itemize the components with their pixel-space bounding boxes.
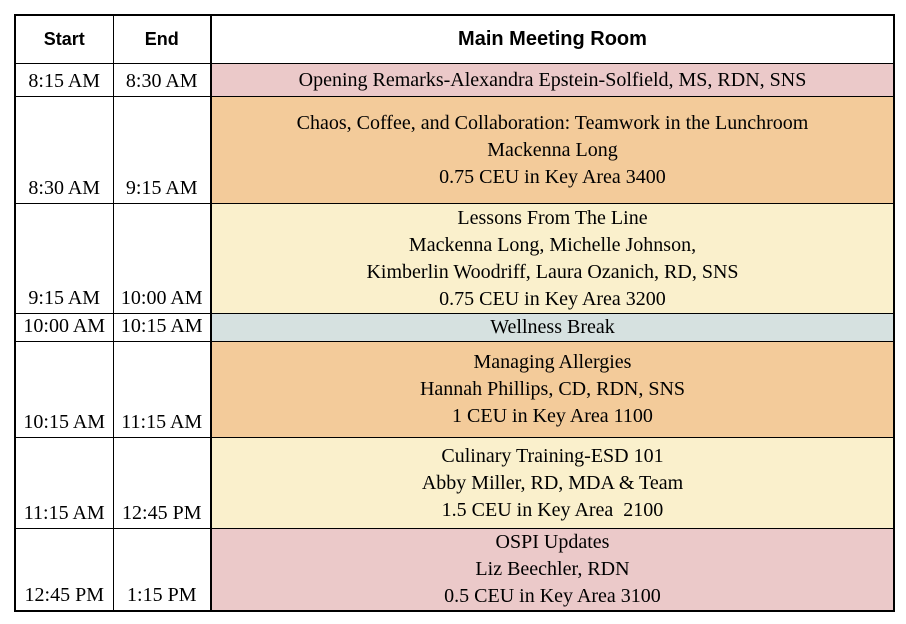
session-line: Kimberlin Woodriff, Laura Ozanich, RD, S… (212, 259, 893, 286)
session-line: 1.5 CEU in Key Area 2100 (212, 497, 893, 524)
table-row: 11:15 AM 12:45 PM Culinary Training-ESD … (15, 438, 894, 529)
start-time-cell: 10:00 AM (15, 314, 113, 342)
session-cell: Wellness Break (211, 314, 894, 342)
schedule-table: Start End Main Meeting Room 8:15 AM 8:30… (14, 14, 895, 612)
session-line: Opening Remarks-Alexandra Epstein-Solfie… (212, 67, 893, 94)
session-line: Hannah Phillips, CD, RDN, SNS (212, 376, 893, 403)
session-line: 0.5 CEU in Key Area 3100 (212, 583, 893, 610)
table-row: 10:15 AM 11:15 AM Managing AllergiesHann… (15, 342, 894, 438)
session-line: Lessons From The Line (212, 205, 893, 232)
table-row: 9:15 AM 10:00 AM Lessons From The LineMa… (15, 204, 894, 314)
schedule-body: 8:15 AM 8:30 AM Opening Remarks-Alexandr… (15, 64, 894, 612)
start-time-cell: 8:30 AM (15, 97, 113, 204)
start-time-cell: 12:45 PM (15, 529, 113, 612)
session-cell: Chaos, Coffee, and Collaboration: Teamwo… (211, 97, 894, 204)
end-time-cell: 11:15 AM (113, 342, 211, 438)
column-header-end: End (113, 15, 211, 64)
table-row: 8:30 AM 9:15 AM Chaos, Coffee, and Colla… (15, 97, 894, 204)
column-header-main-meeting-room: Main Meeting Room (211, 15, 894, 64)
end-time-cell: 10:15 AM (113, 314, 211, 342)
session-line: Culinary Training-ESD 101 (212, 443, 893, 470)
start-time-cell: 8:15 AM (15, 64, 113, 97)
start-time-cell: 10:15 AM (15, 342, 113, 438)
session-line: Mackenna Long, Michelle Johnson, (212, 232, 893, 259)
table-row: 10:00 AM 10:15 AM Wellness Break (15, 314, 894, 342)
end-time-cell: 12:45 PM (113, 438, 211, 529)
session-line: Managing Allergies (212, 349, 893, 376)
start-time-cell: 11:15 AM (15, 438, 113, 529)
end-time-cell: 1:15 PM (113, 529, 211, 612)
session-line: Abby Miller, RD, MDA & Team (212, 470, 893, 497)
session-line: OSPI Updates (212, 529, 893, 556)
session-cell: OSPI UpdatesLiz Beechler, RDN0.5 CEU in … (211, 529, 894, 612)
session-cell: Managing AllergiesHannah Phillips, CD, R… (211, 342, 894, 438)
start-time-cell: 9:15 AM (15, 204, 113, 314)
session-line: 1 CEU in Key Area 1100 (212, 403, 893, 430)
session-line: 0.75 CEU in Key Area 3200 (212, 286, 893, 313)
session-line: 0.75 CEU in Key Area 3400 (212, 164, 893, 191)
session-line: Mackenna Long (212, 137, 893, 164)
end-time-cell: 8:30 AM (113, 64, 211, 97)
table-row: 8:15 AM 8:30 AM Opening Remarks-Alexandr… (15, 64, 894, 97)
session-line: Wellness Break (212, 314, 893, 341)
session-cell: Lessons From The LineMackenna Long, Mich… (211, 204, 894, 314)
session-cell: Opening Remarks-Alexandra Epstein-Solfie… (211, 64, 894, 97)
session-line: Liz Beechler, RDN (212, 556, 893, 583)
end-time-cell: 9:15 AM (113, 97, 211, 204)
header-row: Start End Main Meeting Room (15, 15, 894, 64)
column-header-start: Start (15, 15, 113, 64)
end-time-cell: 10:00 AM (113, 204, 211, 314)
session-line: Chaos, Coffee, and Collaboration: Teamwo… (212, 110, 893, 137)
session-cell: Culinary Training-ESD 101Abby Miller, RD… (211, 438, 894, 529)
table-row: 12:45 PM 1:15 PM OSPI UpdatesLiz Beechle… (15, 529, 894, 612)
